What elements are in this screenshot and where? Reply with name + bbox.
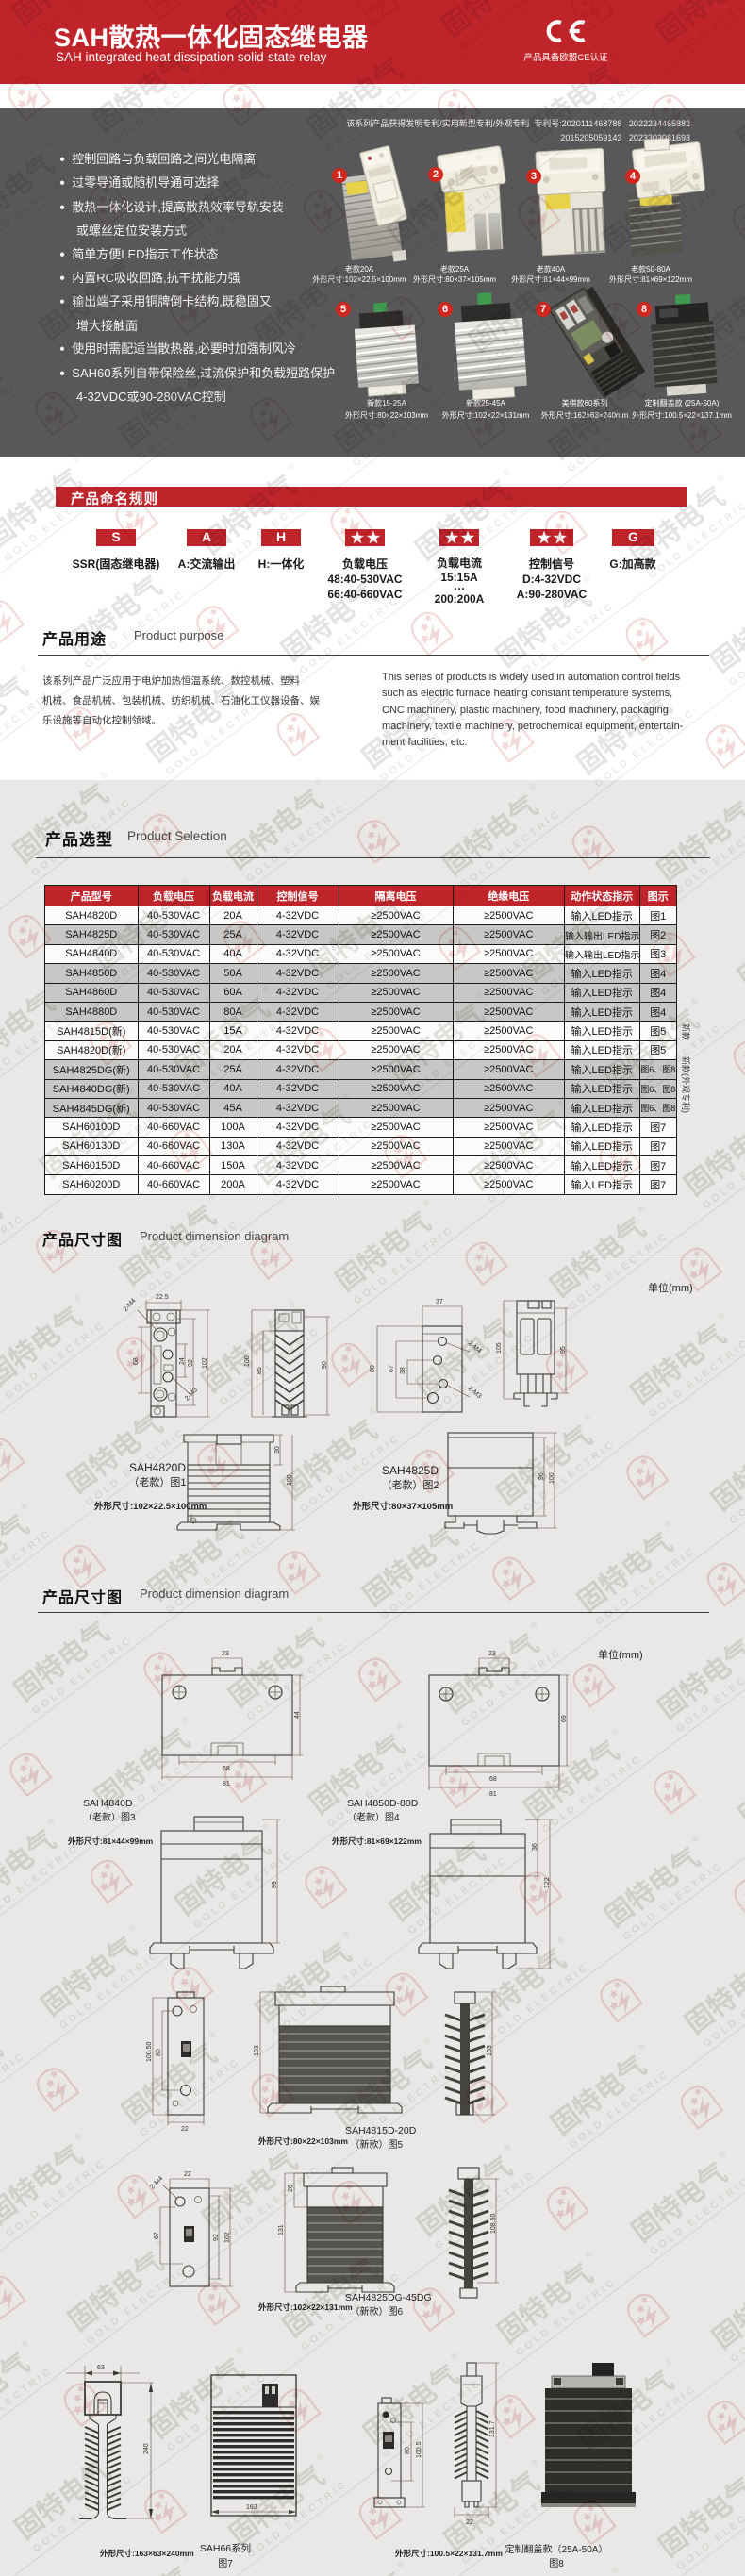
svg-text:22: 22 [181,2126,189,2133]
svg-text:23: 23 [222,1651,229,1657]
svg-text:2-M4: 2-M4 [467,1340,483,1355]
svg-text:80: 80 [156,2049,162,2056]
svg-text:100: 100 [244,1355,251,1367]
svg-text:68: 68 [133,1357,140,1365]
svg-text:92: 92 [188,1359,194,1367]
svg-text:80: 80 [370,1365,376,1372]
svg-text:100: 100 [549,1472,555,1484]
svg-text:26: 26 [288,2185,294,2192]
svg-text:2-M4: 2-M4 [149,2175,164,2190]
svg-text:24: 24 [179,1357,186,1365]
svg-text:68: 68 [489,1776,497,1783]
svg-text:22: 22 [184,2171,191,2178]
svg-text:23: 23 [488,1651,496,1657]
svg-text:22.5: 22.5 [156,1294,169,1301]
svg-text:2-M3: 2-M3 [467,1386,483,1401]
svg-text:103: 103 [254,2045,260,2056]
svg-text:90: 90 [322,1361,328,1369]
svg-text:105: 105 [496,1342,503,1354]
svg-text:100: 100 [287,1474,293,1486]
svg-text:68: 68 [223,1766,230,1772]
svg-text:80: 80 [405,2447,411,2454]
svg-text:102: 102 [224,2232,231,2243]
svg-text:122: 122 [544,1877,551,1888]
svg-text:102: 102 [202,1357,208,1369]
svg-text:37: 37 [436,1299,443,1305]
svg-text:240: 240 [143,2443,150,2454]
svg-text:63: 63 [97,2365,105,2371]
svg-text:69: 69 [561,1715,568,1722]
svg-text:99: 99 [272,1881,278,1888]
svg-text:67: 67 [389,1365,395,1372]
svg-text:2-M3: 2-M3 [184,1387,199,1403]
svg-text:81: 81 [489,1791,497,1798]
svg-text:103: 103 [487,2045,493,2056]
svg-text:100.5: 100.5 [416,2441,422,2458]
svg-text:81: 81 [223,1781,230,1787]
svg-text:95: 95 [560,1346,567,1354]
svg-text:38: 38 [400,1367,406,1374]
svg-text:2-M4: 2-M4 [123,1298,138,1314]
svg-text:163: 163 [246,2504,257,2511]
svg-text:67: 67 [154,2232,160,2239]
svg-text:131.7: 131.7 [489,2420,496,2437]
svg-text:22: 22 [466,2519,473,2526]
svg-text:96: 96 [538,1472,545,1480]
svg-text:100.50: 100.50 [146,2041,153,2062]
svg-text:36: 36 [532,1843,538,1851]
svg-text:85: 85 [257,1367,263,1374]
svg-text:131: 131 [278,2224,285,2235]
svg-text:92: 92 [213,2234,220,2241]
svg-text:108.50: 108.50 [490,2213,497,2234]
svg-text:44: 44 [294,1711,301,1719]
svg-text:30: 30 [274,1446,281,1454]
